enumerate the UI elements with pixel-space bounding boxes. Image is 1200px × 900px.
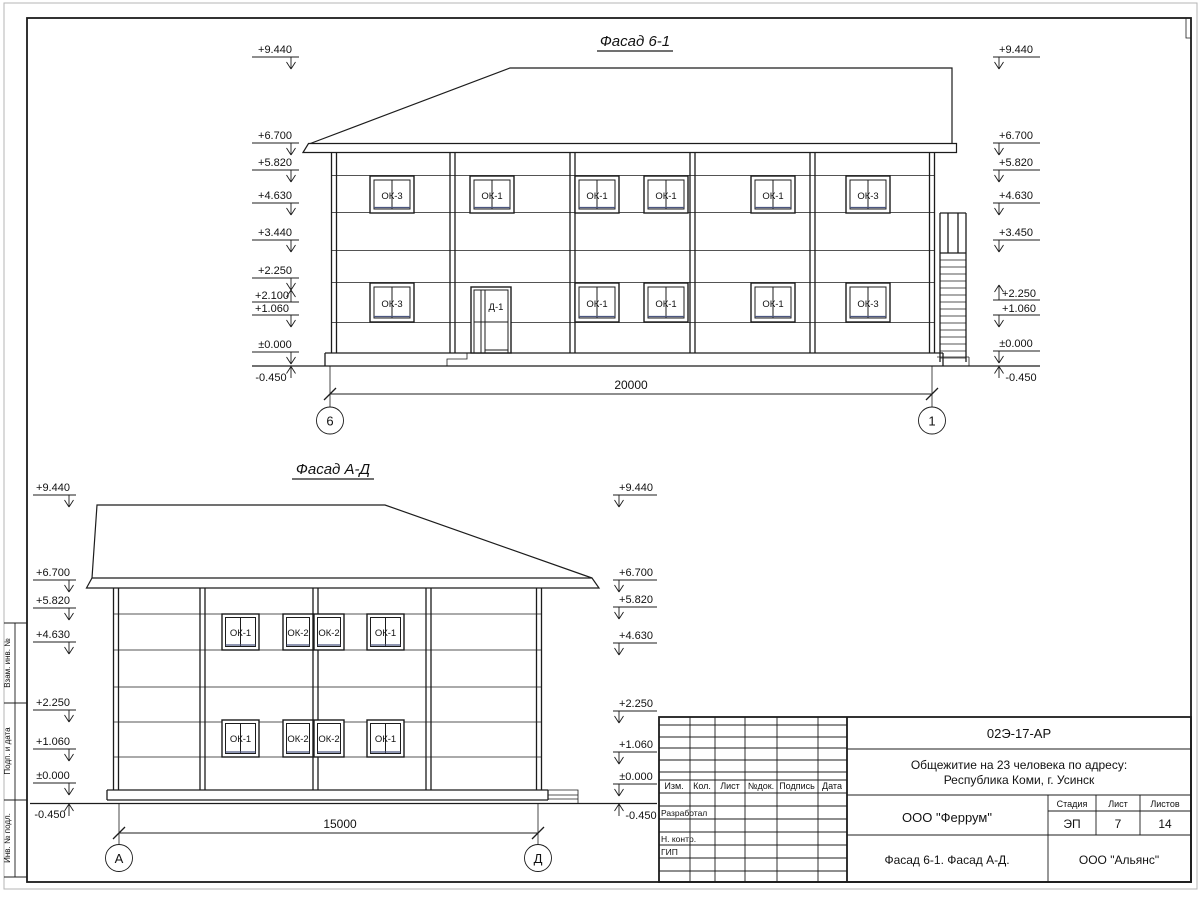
door-label: Д-1 (489, 302, 504, 313)
fasad-a-d-windows-bottom: ОК-1 ОК-2 ОК-2 ОК-1 (222, 720, 404, 757)
window-label: ОК-1 (375, 628, 396, 639)
window-label: ОК-2 (318, 734, 339, 745)
axis-label: 1 (928, 414, 935, 429)
fasad-a-d-eaves (87, 578, 600, 588)
elev-value: +4.630 (258, 190, 292, 202)
window-label: ОК-1 (230, 734, 251, 745)
window: ОК-1 (644, 176, 688, 213)
elev-value: +6.700 (36, 567, 70, 579)
elev-value: ±0.000 (258, 339, 292, 351)
fasad-a-d-plinth (30, 790, 657, 804)
fasad-a-d-marks-right: +9.440 +6.700 +5.820 +4.630 +2.250 +1.06… (613, 482, 657, 822)
elev-value: +1.060 (619, 739, 653, 751)
sheet-value: 7 (1115, 817, 1122, 831)
fasad-6-1-eaves (303, 144, 957, 153)
elev-mark: +2.250 (33, 697, 76, 722)
stamp-label-vzam: Взам. инв. № (3, 638, 12, 688)
elev-value: ±0.000 (999, 338, 1033, 350)
window: ОК-1 (367, 720, 404, 757)
col-list: Лист (720, 781, 740, 791)
elev-mark: ±0.000 (252, 339, 299, 364)
elev-value: ±0.000 (619, 771, 653, 783)
title-block: 02Э-17-АР Общежитие на 23 человека по ад… (659, 717, 1191, 882)
window-label: ОК-3 (381, 191, 402, 202)
elev-value: +9.440 (619, 482, 653, 494)
elev-mark: +2.250 (993, 285, 1040, 300)
elev-value: +2.250 (1002, 288, 1036, 300)
elev-mark: +9.440 (613, 482, 657, 507)
elev-mark: +5.820 (33, 595, 76, 620)
fasad-a-d-windows-top: ОК-1 ОК-2 ОК-2 ОК-1 (222, 614, 404, 650)
elev-mark: +4.630 (613, 630, 657, 655)
window: ОК-1 (575, 176, 619, 213)
elev-value: +9.440 (999, 44, 1033, 56)
col-izm: Изм. (664, 781, 683, 791)
window: ОК-2 (283, 614, 313, 650)
window-label: ОК-1 (481, 191, 502, 202)
fasad-6-1-windows-top: ОК-3 ОК-1 ОК-1 ОК-1 ОК-1 ОК-3 (370, 176, 890, 213)
window-label: ОК-1 (586, 191, 607, 202)
axis-label: А (115, 851, 124, 866)
elev-mark: +5.820 (993, 157, 1040, 182)
window-label: ОК-2 (287, 734, 308, 745)
elev-value: +3.440 (258, 227, 292, 239)
window-label: ОК-3 (381, 299, 402, 310)
window: ОК-3 (846, 283, 890, 322)
fasad-6-1-title: Фасад 6-1 (600, 33, 670, 50)
window-label: ОК-1 (762, 191, 783, 202)
window: ОК-1 (222, 720, 259, 757)
project-name-line1: Общежитие на 23 человека по адресу: (911, 758, 1127, 772)
elev-value: +6.700 (999, 130, 1033, 142)
elev-mark: +2.250 (252, 265, 299, 290)
elev-value: -0.450 (34, 809, 65, 821)
fasad-6-1-marks-left: +9.440 +6.700 +5.820 +4.630 +3.440 +2.25… (252, 44, 299, 384)
elev-value: +2.250 (258, 265, 292, 277)
elev-mark: +1.060 (33, 736, 76, 761)
elev-value: +1.060 (255, 303, 289, 315)
elev-value: -0.450 (1005, 372, 1036, 384)
window-label: ОК-1 (762, 299, 783, 310)
elev-mark: +1.060 (993, 303, 1040, 327)
elev-value: +5.820 (619, 594, 653, 606)
elev-mark: +4.630 (252, 190, 299, 215)
elev-mark: +6.700 (33, 567, 76, 592)
window: ОК-1 (575, 283, 619, 322)
stage-value: ЭП (1063, 817, 1080, 831)
stage-header: Стадия (1057, 799, 1088, 809)
dimension-value: 15000 (323, 817, 357, 831)
elev-mark: +1.060 (613, 739, 657, 764)
window-label: ОК-1 (230, 628, 251, 639)
elev-mark: +4.630 (993, 190, 1040, 215)
col-ndok: №док. (748, 781, 774, 791)
fasad-6-1: Фасад 6-1 ОК-3 ОК-1 ОК-1 ОК-1 ОК-1 ОК-3 … (252, 33, 1040, 434)
window: ОК-1 (367, 614, 404, 650)
fasad-a-d-title: Фасад А-Д (296, 461, 371, 478)
elev-mark: +5.820 (252, 157, 299, 182)
elev-mark: +3.440 (252, 227, 299, 252)
fasad-6-1-windows-bottom: ОК-3 ОК-1 ОК-1 ОК-1 ОК-3 Д-1 (370, 283, 890, 353)
elev-mark: ±0.000 (993, 338, 1040, 363)
elev-mark: +9.440 (993, 44, 1040, 69)
window: ОК-1 (222, 614, 259, 650)
elev-mark: +4.630 (33, 629, 76, 654)
axis-label: Д (534, 851, 543, 866)
window: ОК-1 (751, 283, 795, 322)
elev-value: +5.820 (999, 157, 1033, 169)
elev-value: +1.060 (36, 736, 70, 748)
elev-value: ±0.000 (36, 770, 70, 782)
elev-value: +2.250 (619, 698, 653, 710)
elev-value: +2.100 (255, 290, 289, 302)
window-label: ОК-1 (586, 299, 607, 310)
fasad-6-1-marks-right: +9.440 +6.700 +5.820 +4.630 +3.450 +2.25… (993, 44, 1040, 384)
elev-mark: +6.700 (993, 130, 1040, 155)
row-nkontr: Н. контр. (661, 834, 696, 844)
elev-value: -0.450 (625, 810, 656, 822)
window-label: ОК-2 (318, 628, 339, 639)
window: ОК-3 (846, 176, 890, 213)
drawing-sheet: Взам. инв. № Подп. и дата Инв. № подл. Ф… (0, 0, 1200, 900)
elev-mark: +6.700 (613, 567, 657, 592)
elev-value: +6.700 (619, 567, 653, 579)
fasad-a-d-dimension: 15000 А Д (106, 804, 552, 872)
fasad-6-1-plinth (252, 353, 1040, 366)
col-data: Дата (822, 781, 842, 791)
window-label: ОК-3 (857, 299, 878, 310)
col-kol: Кол. (693, 781, 711, 791)
elev-mark: -0.450 (615, 804, 657, 822)
stamp-label-podp: Подп. и дата (3, 727, 12, 775)
fasad-6-1-pilasters (332, 153, 935, 353)
fasad-6-1-dimension: 20000 6 1 (317, 366, 946, 434)
stamp-label-inv: Инв. № подл. (3, 813, 12, 863)
elev-mark: +3.450 (993, 227, 1040, 252)
doc-number: 02Э-17-АР (987, 726, 1051, 741)
elev-value: +9.440 (36, 482, 70, 494)
elev-value: +3.450 (999, 227, 1033, 239)
elev-mark: ±0.000 (33, 770, 76, 795)
facade-drawing-svg: Взам. инв. № Подп. и дата Инв. № подл. Ф… (0, 0, 1200, 900)
window: ОК-1 (751, 176, 795, 213)
entrance-door: Д-1 (471, 287, 511, 353)
elev-mark: +1.060 (252, 303, 299, 327)
elev-value: -0.450 (255, 372, 286, 384)
project-name-line2: Республика Коми, г. Усинск (944, 773, 1095, 787)
window-label: ОК-1 (375, 734, 396, 745)
elev-value: +1.060 (1002, 303, 1036, 315)
fasad-6-1-banding (332, 176, 935, 323)
window-label: ОК-1 (655, 299, 676, 310)
fasad-a-d-roof (92, 505, 592, 578)
window: ОК-2 (314, 614, 344, 650)
stamp-column: Взам. инв. № Подп. и дата Инв. № подл. (3, 623, 27, 877)
elev-value: +4.630 (36, 629, 70, 641)
elev-mark: +9.440 (252, 44, 299, 69)
elev-mark: +5.820 (613, 594, 657, 619)
fasad-a-d-marks-left: +9.440 +6.700 +5.820 +4.630 +2.250 +1.06… (33, 482, 76, 821)
axis-label: 6 (326, 414, 333, 429)
window-label: ОК-3 (857, 191, 878, 202)
window: ОК-3 (370, 176, 414, 213)
sheet-header: Лист (1108, 799, 1128, 809)
elev-value: +2.250 (36, 697, 70, 709)
elev-value: +5.820 (36, 595, 70, 607)
fire-escape-ladder (940, 213, 966, 362)
elev-mark: +2.100 (252, 290, 299, 302)
elev-value: +6.700 (258, 130, 292, 142)
fasad-6-1-roof (309, 68, 952, 144)
window: ОК-1 (644, 283, 688, 322)
elev-value: +4.630 (619, 630, 653, 642)
row-razrabotal: Разработал (661, 808, 707, 818)
contractor-org: ООО "Альянс" (1079, 853, 1159, 867)
elev-mark: -0.450 (995, 367, 1037, 385)
elev-mark: -0.450 (34, 804, 73, 821)
elev-value: +9.440 (258, 44, 292, 56)
window: ОК-3 (370, 283, 414, 322)
elev-value: +4.630 (999, 190, 1033, 202)
elev-mark: -0.450 (255, 367, 295, 385)
fasad-a-d: Фасад А-Д ОК-1 ОК-2 ОК-2 ОК-1 ОК-1 ОК-2 … (30, 461, 657, 872)
elev-value: +5.820 (258, 157, 292, 169)
row-gip: ГИП (661, 847, 678, 857)
sheets-header: Листов (1150, 799, 1179, 809)
design-org: ООО "Феррум" (902, 810, 992, 825)
col-podpis: Подпись (779, 781, 815, 791)
window-label: ОК-1 (655, 191, 676, 202)
dimension-value: 20000 (614, 378, 648, 392)
sheet-name: Фасад 6-1. Фасад А-Д. (884, 853, 1009, 867)
window: ОК-1 (470, 176, 514, 213)
window: ОК-2 (314, 720, 344, 757)
window: ОК-2 (283, 720, 313, 757)
elev-mark: ±0.000 (613, 771, 657, 796)
window-label: ОК-2 (287, 628, 308, 639)
elev-mark: +2.250 (613, 698, 657, 723)
elev-mark: +6.700 (252, 130, 299, 155)
elev-mark: +9.440 (33, 482, 76, 507)
sheets-value: 14 (1158, 817, 1172, 831)
